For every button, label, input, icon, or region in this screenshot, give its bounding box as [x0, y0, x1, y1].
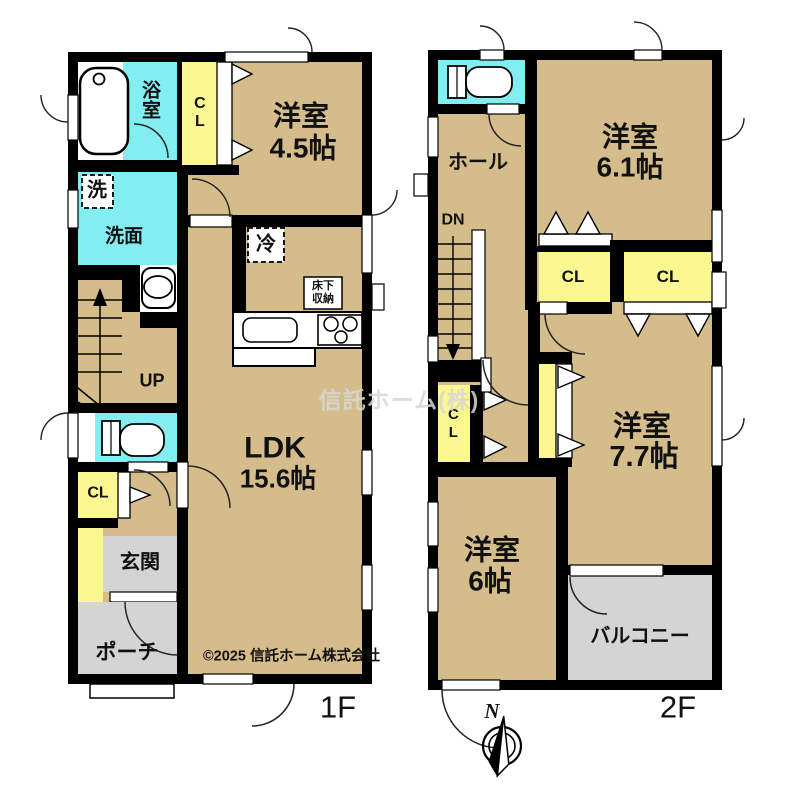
- bath-drain-icon: [94, 74, 105, 85]
- window: [362, 450, 372, 495]
- floor1-plan: [41, 28, 397, 726]
- west-room2-label: 洋室: [613, 412, 671, 442]
- casement-window-arc: [288, 28, 312, 52]
- window: [362, 215, 372, 273]
- door-leaf: [190, 215, 232, 227]
- casement-window-arc: [41, 413, 68, 440]
- porch-step-outside: [90, 684, 174, 698]
- laundry-label: 洗: [87, 181, 107, 202]
- folding-door-track: [624, 302, 712, 314]
- window: [362, 565, 372, 610]
- ldk-size: 15.6帖: [240, 465, 317, 492]
- window: [68, 95, 78, 140]
- compass-needle: [487, 715, 514, 777]
- watermark-text: 信託ホーム(株): [319, 381, 480, 415]
- window-box: [712, 272, 726, 308]
- wall: [438, 462, 568, 477]
- west-room2-size: 7.7帖: [609, 442, 678, 472]
- window: [428, 502, 438, 546]
- closet-strip-room: [539, 364, 556, 458]
- west-room3-size: 6帖: [468, 566, 512, 595]
- casement-window-arc: [722, 418, 744, 440]
- window: [428, 336, 438, 362]
- kitchen-sink-icon: [243, 318, 297, 342]
- fridge-label: 冷: [256, 235, 276, 256]
- entrance-closet-strip: [78, 528, 103, 606]
- window: [634, 50, 662, 60]
- wall: [78, 518, 118, 528]
- ldk-label: LDK: [244, 432, 306, 464]
- toilet-bowl-icon: [120, 424, 164, 456]
- floorplan-image: 浴室 CL 洋室 4.5帖 洗 洗面 UP 冷 床下 収納 LDK 15.6帖 …: [0, 0, 800, 800]
- entrance-label: 玄関: [120, 553, 160, 574]
- washbasin-bowl-icon: [144, 276, 172, 298]
- compass-icon: [483, 715, 521, 777]
- entrance-step: [110, 592, 177, 602]
- hall-label: ホール: [448, 153, 508, 174]
- casement-window-arc: [480, 26, 504, 50]
- stairs-down-label: DN: [441, 213, 464, 230]
- stair-rail: [472, 230, 485, 360]
- door-leaf: [177, 462, 188, 508]
- wall: [177, 165, 239, 175]
- closet-a-label: CL: [562, 268, 585, 286]
- porch-label: ポーチ: [96, 642, 159, 664]
- wall: [556, 467, 568, 690]
- kitchen-counter-return: [233, 348, 315, 366]
- wall: [78, 160, 177, 172]
- casement-window-arc: [41, 95, 68, 122]
- wall: [610, 240, 624, 302]
- folding-door-track: [217, 62, 232, 165]
- window: [712, 366, 722, 466]
- copyright-text: ©2025 信託ホーム株式会社: [203, 645, 380, 666]
- door-leaf: [442, 680, 500, 690]
- wall: [140, 312, 177, 328]
- wall: [537, 352, 572, 364]
- balcony-label: バルコニー: [590, 627, 690, 648]
- window: [428, 117, 438, 157]
- window-box: [414, 174, 428, 196]
- folding-door-track: [539, 234, 612, 246]
- closet-lower-label: CL: [87, 486, 108, 503]
- bathroom-label: 浴室: [139, 80, 159, 120]
- washroom-label: 洗面: [105, 227, 143, 247]
- closet-top-label: CL: [191, 95, 208, 131]
- toilet-window-bay: [78, 413, 95, 462]
- door-leaf: [203, 674, 253, 684]
- floor2-label: 2F: [660, 692, 696, 725]
- window: [225, 52, 308, 62]
- west-room-label: 洋室: [273, 101, 329, 130]
- underfloor-storage-label2: 収納: [312, 294, 334, 306]
- floor1-label: 1F: [320, 692, 356, 725]
- wall: [525, 60, 537, 310]
- stairs-up-label: UP: [139, 372, 164, 391]
- wall: [528, 302, 540, 467]
- door-leaf: [539, 302, 567, 314]
- folding-door-track: [118, 472, 130, 518]
- casement-window-arc: [722, 118, 744, 140]
- closet-b-label: CL: [657, 268, 680, 286]
- window: [480, 50, 504, 60]
- wall: [122, 265, 140, 312]
- wall: [78, 403, 177, 413]
- west-room1-label: 洋室: [602, 122, 658, 151]
- compass-north-label: N: [484, 700, 499, 722]
- wall: [612, 240, 712, 252]
- west-room1-size: 6.1帖: [597, 152, 664, 181]
- casement-window-arc: [372, 190, 397, 215]
- window: [68, 413, 78, 458]
- window-box: [372, 284, 384, 310]
- window: [712, 210, 722, 262]
- west-room3-label: 洋室: [464, 535, 520, 564]
- wall: [438, 360, 485, 382]
- window: [428, 568, 438, 612]
- window: [68, 190, 78, 228]
- wall: [537, 246, 612, 252]
- toilet-bowl-icon: [466, 67, 512, 97]
- casement-window-arc: [634, 22, 662, 50]
- wall: [232, 227, 246, 312]
- underfloor-storage-label: 床下: [312, 281, 334, 293]
- door-leaf: [570, 565, 663, 576]
- west-room-size: 4.5帖: [270, 133, 337, 162]
- door-leaf: [487, 104, 519, 114]
- ldk-exterior-door-arc: [252, 684, 294, 726]
